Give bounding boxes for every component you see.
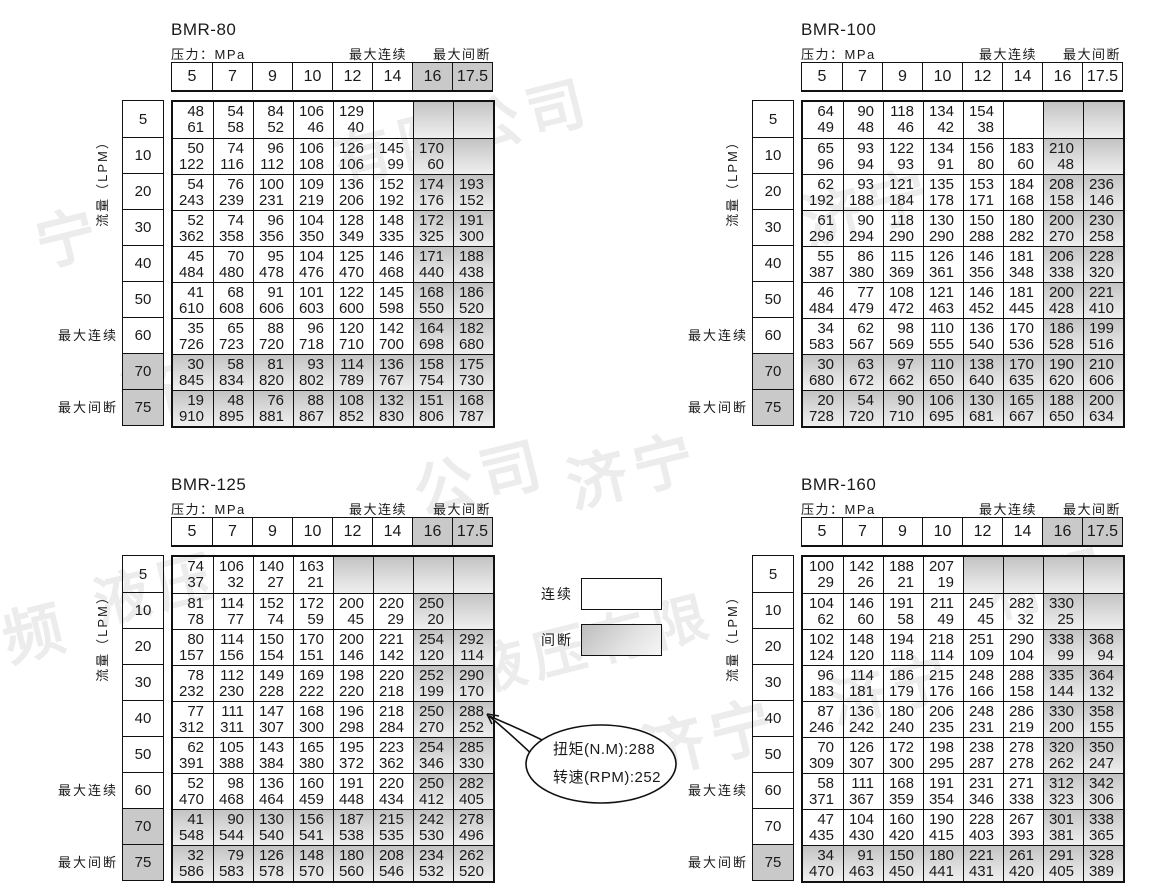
torque-value: 65 bbox=[803, 141, 834, 157]
flow-label-cell: 30 bbox=[123, 209, 163, 245]
speed-value: 222 bbox=[294, 684, 324, 700]
pressure-header-cell: 7 bbox=[212, 518, 252, 545]
data-cell: 115369 bbox=[883, 246, 923, 282]
data-cell: 330200 bbox=[1043, 701, 1083, 737]
speed-value: 560 bbox=[334, 864, 364, 880]
speed-value: 231 bbox=[964, 720, 994, 736]
pressure-header-cell: 12 bbox=[962, 518, 1002, 545]
torque-value: 175 bbox=[454, 357, 484, 373]
speed-value: 369 bbox=[884, 265, 914, 281]
speed-value: 698 bbox=[414, 337, 444, 353]
flow-label-cell: 60 bbox=[753, 317, 793, 353]
data-cell: 342306 bbox=[1083, 773, 1123, 809]
speed-value: 680 bbox=[803, 373, 834, 389]
data-cell: 68608 bbox=[213, 282, 253, 318]
torque-value: 165 bbox=[1004, 393, 1034, 409]
flow-label-cell: 5 bbox=[753, 556, 793, 592]
data-cell: 194118 bbox=[883, 629, 923, 665]
torque-value: 130 bbox=[924, 213, 954, 229]
flow-label-cell: 5 bbox=[753, 101, 793, 137]
torque-value: 196 bbox=[334, 704, 364, 720]
data-cell: 254346 bbox=[413, 737, 453, 773]
speed-value: 38 bbox=[964, 120, 994, 136]
data-cell: 114156 bbox=[213, 629, 253, 665]
speed-value: 672 bbox=[844, 373, 874, 389]
speed-value: 538 bbox=[334, 828, 364, 844]
data-cell bbox=[1043, 557, 1083, 593]
data-cell: 111311 bbox=[213, 701, 253, 737]
torque-value: 168 bbox=[294, 704, 324, 720]
data-cell: 65723 bbox=[213, 318, 253, 354]
data-cell: 120710 bbox=[333, 318, 373, 354]
data-cell: 91463 bbox=[843, 845, 883, 881]
data-cell: 191448 bbox=[333, 773, 373, 809]
pressure-header-cell: 16 bbox=[1042, 63, 1082, 90]
flow-axis-label-text: 流量（LPM） bbox=[722, 589, 741, 682]
speed-value: 516 bbox=[1084, 337, 1114, 353]
data-cell: 136464 bbox=[253, 773, 293, 809]
torque-value: 186 bbox=[884, 668, 914, 684]
pressure-header-cell: 5 bbox=[172, 518, 212, 545]
data-cell: 165380 bbox=[293, 737, 333, 773]
speed-value: 74 bbox=[254, 612, 284, 628]
data-cell bbox=[373, 102, 413, 138]
speed-value: 448 bbox=[334, 792, 364, 808]
data-cell: 118290 bbox=[883, 210, 923, 246]
torque-value: 115 bbox=[884, 249, 914, 265]
speed-value: 168 bbox=[1004, 193, 1034, 209]
data-cell: 35726 bbox=[173, 318, 213, 354]
torque-value: 91 bbox=[844, 848, 874, 864]
torque-value: 230 bbox=[1084, 213, 1114, 229]
speed-value: 356 bbox=[254, 229, 284, 245]
speed-value: 767 bbox=[374, 373, 404, 389]
torque-value: 148 bbox=[374, 213, 404, 229]
data-cell: 193152 bbox=[453, 174, 493, 210]
speed-value: 29 bbox=[803, 575, 834, 591]
torque-value: 136 bbox=[334, 177, 364, 193]
torque-value: 102 bbox=[803, 632, 834, 648]
data-cell: 52470 bbox=[173, 773, 213, 809]
speed-value: 176 bbox=[414, 193, 444, 209]
data-cell: 102124 bbox=[803, 629, 843, 665]
pressure-unit-label: 压力：MPa bbox=[171, 499, 246, 518]
motor-table-bmr-125: BMR-125压力：MPa最大连续最大间断5791012141617.55102… bbox=[0, 475, 562, 895]
torque-value: 112 bbox=[214, 668, 244, 684]
data-cell: 58371 bbox=[803, 773, 843, 809]
pressure-header-cell: 9 bbox=[252, 518, 292, 545]
speed-value: 723 bbox=[214, 337, 244, 353]
data-cell: 220218 bbox=[373, 665, 413, 701]
speed-value: 403 bbox=[964, 828, 994, 844]
torque-value: 106 bbox=[294, 104, 324, 120]
torque-value: 126 bbox=[334, 141, 364, 157]
flow-label-cell: 70 bbox=[123, 353, 163, 389]
data-cell: 267393 bbox=[1003, 809, 1043, 845]
speed-value: 179 bbox=[884, 684, 914, 700]
legend-continuous-label: 连续 bbox=[541, 584, 573, 604]
torque-value: 122 bbox=[884, 141, 914, 157]
speed-value: 440 bbox=[414, 265, 444, 281]
data-cell: 250412 bbox=[413, 773, 453, 809]
data-cell: 150154 bbox=[253, 629, 293, 665]
data-cell: 122600 bbox=[333, 282, 373, 318]
torque-value: 195 bbox=[334, 740, 364, 756]
speed-value: 578 bbox=[254, 864, 284, 880]
speed-value: 359 bbox=[884, 792, 914, 808]
torque-value: 106 bbox=[214, 559, 244, 575]
torque-value: 234 bbox=[414, 848, 444, 864]
speed-value: 391 bbox=[173, 756, 204, 772]
torque-value: 78 bbox=[173, 668, 204, 684]
torque-value: 160 bbox=[884, 812, 914, 828]
torque-value: 172 bbox=[294, 596, 324, 612]
data-grid: 7437106321402716321817811477152741725920… bbox=[171, 555, 495, 883]
speed-value: 109 bbox=[964, 648, 994, 664]
data-cell: 9048 bbox=[843, 102, 883, 138]
speed-value: 583 bbox=[803, 337, 834, 353]
speed-value: 606 bbox=[254, 301, 284, 317]
speed-value: 59 bbox=[294, 612, 324, 628]
pressure-header-cell: 9 bbox=[882, 63, 922, 90]
speed-value: 548 bbox=[173, 828, 204, 844]
torque-value: 100 bbox=[254, 177, 284, 193]
flow-axis-label-text: 流量（LPM） bbox=[92, 589, 111, 682]
speed-value: 528 bbox=[1044, 337, 1074, 353]
data-cell: 14027 bbox=[253, 557, 293, 593]
torque-value: 98 bbox=[214, 776, 244, 792]
flow-label-cell: 50 bbox=[753, 281, 793, 317]
torque-value: 118 bbox=[884, 104, 914, 120]
torque-value: 30 bbox=[803, 357, 834, 373]
data-cell: 165667 bbox=[1003, 390, 1043, 426]
speed-value: 40 bbox=[334, 120, 364, 136]
torque-value: 286 bbox=[1004, 704, 1034, 720]
speed-value: 680 bbox=[454, 337, 484, 353]
data-cell: 93188 bbox=[843, 174, 883, 210]
speed-value: 206 bbox=[334, 193, 364, 209]
data-cell: 172300 bbox=[883, 737, 923, 773]
data-cell: 17060 bbox=[413, 138, 453, 174]
data-cell: 168300 bbox=[293, 701, 333, 737]
speed-value: 484 bbox=[803, 301, 834, 317]
torque-value: 105 bbox=[214, 740, 244, 756]
data-cell: 158754 bbox=[413, 354, 453, 390]
speed-value: 220 bbox=[334, 684, 364, 700]
data-cell: 8452 bbox=[253, 102, 293, 138]
speed-value: 598 bbox=[374, 301, 404, 317]
torque-value: 121 bbox=[924, 285, 954, 301]
speed-value: 484 bbox=[173, 265, 204, 281]
torque-value: 130 bbox=[254, 812, 284, 828]
data-cell: 151806 bbox=[413, 390, 453, 426]
flow-label-cell: 10 bbox=[753, 137, 793, 173]
speed-value: 188 bbox=[844, 193, 874, 209]
data-cell: 290170 bbox=[453, 665, 493, 701]
torque-value: 96 bbox=[254, 213, 284, 229]
speed-value: 114 bbox=[454, 648, 484, 664]
torque-value: 228 bbox=[964, 812, 994, 828]
torque-value: 262 bbox=[454, 848, 484, 864]
max-continuous-row-label: 最大连续 bbox=[0, 316, 118, 352]
speed-value: 219 bbox=[1004, 720, 1034, 736]
torque-value: 193 bbox=[454, 177, 484, 193]
speed-value: 463 bbox=[924, 301, 954, 317]
speed-value: 290 bbox=[884, 229, 914, 245]
speed-value: 246 bbox=[803, 720, 834, 736]
torque-value: 126 bbox=[924, 249, 954, 265]
flow-label-cell: 5 bbox=[123, 101, 163, 137]
speed-value: 555 bbox=[924, 337, 954, 353]
speed-value: 262 bbox=[1044, 756, 1074, 772]
speed-value: 338 bbox=[1044, 265, 1074, 281]
speed-value: 586 bbox=[173, 864, 204, 880]
data-cell: 301381 bbox=[1043, 809, 1083, 845]
flow-axis-label: 流量（LPM） bbox=[716, 555, 746, 715]
speed-value: 610 bbox=[173, 301, 204, 317]
torque-value: 172 bbox=[414, 213, 444, 229]
torque-value: 200 bbox=[1084, 393, 1114, 409]
data-cell: 221142 bbox=[373, 629, 413, 665]
data-cell: 186528 bbox=[1043, 318, 1083, 354]
data-cell: 142700 bbox=[373, 318, 413, 354]
pressure-header-cell: 17.5 bbox=[452, 518, 492, 545]
torque-value: 20 bbox=[803, 393, 834, 409]
pressure-header-cell: 16 bbox=[1042, 518, 1082, 545]
speed-value: 362 bbox=[173, 229, 204, 245]
speed-value: 470 bbox=[803, 864, 834, 880]
data-cell: 47435 bbox=[803, 809, 843, 845]
data-cell: 81820 bbox=[253, 354, 293, 390]
data-cell bbox=[1043, 102, 1083, 138]
speed-value: 464 bbox=[254, 792, 284, 808]
pressure-header-cell: 17.5 bbox=[1082, 518, 1122, 545]
speed-value: 726 bbox=[173, 337, 204, 353]
speed-value: 120 bbox=[414, 648, 444, 664]
max-intermittent-column-label: 最大间断 bbox=[1063, 499, 1121, 518]
torque-value: 152 bbox=[254, 596, 284, 612]
speed-value: 387 bbox=[803, 265, 834, 281]
data-cell bbox=[1083, 557, 1123, 593]
speed-value: 152 bbox=[454, 193, 484, 209]
data-cell: 111367 bbox=[843, 773, 883, 809]
torque-value: 97 bbox=[884, 357, 914, 373]
speed-value: 146 bbox=[1084, 193, 1114, 209]
torque-value: 358 bbox=[1084, 704, 1114, 720]
speed-value: 535 bbox=[374, 828, 404, 844]
flow-label-cell: 50 bbox=[753, 736, 793, 772]
torque-value: 184 bbox=[1004, 177, 1034, 193]
flow-label-cell: 20 bbox=[123, 173, 163, 209]
speed-value: 78 bbox=[173, 612, 204, 628]
data-cell: 198295 bbox=[923, 737, 963, 773]
speed-value: 570 bbox=[294, 864, 324, 880]
speed-value: 45 bbox=[334, 612, 364, 628]
data-cell: 187538 bbox=[333, 809, 373, 845]
torque-value: 111 bbox=[214, 704, 244, 720]
speed-value: 834 bbox=[214, 373, 244, 389]
data-cell: 74358 bbox=[213, 210, 253, 246]
torque-value: 55 bbox=[803, 249, 834, 265]
speed-value: 270 bbox=[1044, 229, 1074, 245]
speed-value: 540 bbox=[964, 337, 994, 353]
data-cell: 126578 bbox=[253, 845, 293, 881]
speed-value: 470 bbox=[334, 265, 364, 281]
data-cell: 14660 bbox=[843, 593, 883, 629]
speed-value: 154 bbox=[254, 648, 284, 664]
data-cell: 52362 bbox=[173, 210, 213, 246]
data-cell: 168550 bbox=[413, 282, 453, 318]
pressure-header-cell: 7 bbox=[212, 63, 252, 90]
flow-label-column: 51020304050607075 bbox=[122, 555, 164, 881]
speed-value: 52 bbox=[254, 120, 284, 136]
speed-value: 806 bbox=[414, 409, 444, 425]
torque-value: 64 bbox=[803, 104, 834, 120]
torque-value: 215 bbox=[924, 668, 954, 684]
torque-value: 154 bbox=[964, 104, 994, 120]
speed-value: 151 bbox=[294, 648, 324, 664]
torque-value: 62 bbox=[803, 177, 834, 193]
data-cell: 218284 bbox=[373, 701, 413, 737]
table-title: BMR-160 bbox=[801, 475, 876, 495]
pressure-header-cell: 10 bbox=[922, 63, 962, 90]
torque-value: 101 bbox=[294, 285, 324, 301]
torque-value: 74 bbox=[214, 213, 244, 229]
data-cell: 148570 bbox=[293, 845, 333, 881]
flow-label-cell: 30 bbox=[123, 664, 163, 700]
speed-value: 29 bbox=[374, 612, 404, 628]
speed-value: 472 bbox=[884, 301, 914, 317]
speed-value: 441 bbox=[924, 864, 954, 880]
speed-value: 405 bbox=[1044, 864, 1074, 880]
flow-label-column: 51020304050607075 bbox=[122, 100, 164, 426]
speed-value: 420 bbox=[884, 828, 914, 844]
data-cell: 62567 bbox=[843, 318, 883, 354]
data-cell: 10646 bbox=[293, 102, 333, 138]
torque-value: 180 bbox=[1004, 213, 1034, 229]
torque-value: 250 bbox=[414, 596, 444, 612]
speed-value: 718 bbox=[294, 337, 324, 353]
torque-value: 301 bbox=[1044, 812, 1074, 828]
data-cell: 146468 bbox=[373, 246, 413, 282]
data-cell: 45484 bbox=[173, 246, 213, 282]
speed-value: 393 bbox=[1004, 828, 1034, 844]
data-cell: 364132 bbox=[1083, 665, 1123, 701]
torque-value: 109 bbox=[294, 177, 324, 193]
torque-value: 108 bbox=[884, 285, 914, 301]
data-cell bbox=[373, 557, 413, 593]
pressure-header-cell: 14 bbox=[1002, 63, 1042, 90]
table-title: BMR-100 bbox=[801, 20, 876, 40]
data-cell: 188438 bbox=[453, 246, 493, 282]
data-cell: 12293 bbox=[883, 138, 923, 174]
torque-value: 188 bbox=[884, 559, 914, 575]
speed-value: 80 bbox=[964, 157, 994, 173]
max-continuous-row-label: 最大连续 bbox=[630, 316, 748, 352]
data-cell: 210606 bbox=[1083, 354, 1123, 390]
flow-label-cell: 60 bbox=[123, 317, 163, 353]
data-cell: 136206 bbox=[333, 174, 373, 210]
flow-label-cell: 70 bbox=[123, 808, 163, 844]
flow-label-cell: 50 bbox=[123, 736, 163, 772]
flow-label-cell: 75 bbox=[753, 389, 793, 425]
speed-value: 380 bbox=[844, 265, 874, 281]
speed-value: 93 bbox=[884, 157, 914, 173]
data-cell: 15680 bbox=[963, 138, 1003, 174]
torque-value: 186 bbox=[454, 285, 484, 301]
torque-value: 70 bbox=[214, 249, 244, 265]
torque-value: 96 bbox=[294, 321, 324, 337]
speed-value: 496 bbox=[454, 828, 484, 844]
max-intermittent-row-label: 最大间断 bbox=[630, 388, 748, 424]
speed-value: 431 bbox=[964, 864, 994, 880]
motor-table-bmr-80: BMR-80压力：MPa最大连续最大间断5791012141617.551020… bbox=[0, 20, 562, 440]
torque-value: 288 bbox=[1004, 668, 1034, 684]
data-cell bbox=[413, 102, 453, 138]
speed-value: 58 bbox=[884, 612, 914, 628]
pressure-header-cell: 12 bbox=[962, 63, 1002, 90]
data-cell: 114181 bbox=[843, 665, 883, 701]
torque-value: 98 bbox=[884, 321, 914, 337]
data-grid: 1002914226188212071910462146601915821149… bbox=[801, 555, 1125, 883]
torque-value: 282 bbox=[454, 776, 484, 792]
torque-value: 150 bbox=[254, 632, 284, 648]
speed-value: 346 bbox=[414, 756, 444, 772]
torque-value: 170 bbox=[414, 141, 444, 157]
torque-value: 145 bbox=[374, 285, 404, 301]
flow-label-cell: 75 bbox=[123, 389, 163, 425]
torque-value: 188 bbox=[1044, 393, 1074, 409]
torque-value: 206 bbox=[1044, 249, 1074, 265]
data-cell bbox=[453, 102, 493, 138]
torque-value: 47 bbox=[803, 812, 834, 828]
motor-spec-sheet: 有限公司济宁宁济公司济宁频液压液压有限济宁有限济宁 BMR-80压力：MPa最大… bbox=[0, 0, 1160, 895]
torque-value: 61 bbox=[803, 213, 834, 229]
torque-value: 136 bbox=[254, 776, 284, 792]
data-cell: 126106 bbox=[333, 138, 373, 174]
torque-value: 136 bbox=[374, 357, 404, 373]
speed-value: 452 bbox=[964, 301, 994, 317]
speed-value: 300 bbox=[294, 720, 324, 736]
data-cell: 138640 bbox=[963, 354, 1003, 390]
data-cell: 358155 bbox=[1083, 701, 1123, 737]
torque-value: 93 bbox=[844, 177, 874, 193]
torque-value: 104 bbox=[803, 596, 834, 612]
data-cell bbox=[333, 557, 373, 593]
data-cell: 34470 bbox=[803, 845, 843, 881]
torque-value: 163 bbox=[294, 559, 324, 575]
speed-value: 468 bbox=[214, 792, 244, 808]
data-cell: 146452 bbox=[963, 282, 1003, 318]
table-subheader: 压力：MPa最大连续最大间断 bbox=[801, 44, 1121, 61]
torque-value: 88 bbox=[294, 393, 324, 409]
data-cell: 169222 bbox=[293, 665, 333, 701]
speed-value: 49 bbox=[924, 612, 954, 628]
torque-value: 134 bbox=[924, 104, 954, 120]
speed-value: 96 bbox=[803, 157, 834, 173]
speed-value: 170 bbox=[454, 684, 484, 700]
torque-value: 30 bbox=[173, 357, 204, 373]
data-cell: 80157 bbox=[173, 629, 213, 665]
data-cell: 20719 bbox=[923, 557, 963, 593]
data-cell: 6449 bbox=[803, 102, 843, 138]
torque-value: 114 bbox=[214, 632, 244, 648]
pressure-header-cell: 9 bbox=[252, 63, 292, 90]
torque-value: 90 bbox=[844, 213, 874, 229]
data-cell: 170536 bbox=[1003, 318, 1043, 354]
speed-value: 290 bbox=[924, 229, 954, 245]
legend-continuous-swatch bbox=[581, 578, 662, 610]
